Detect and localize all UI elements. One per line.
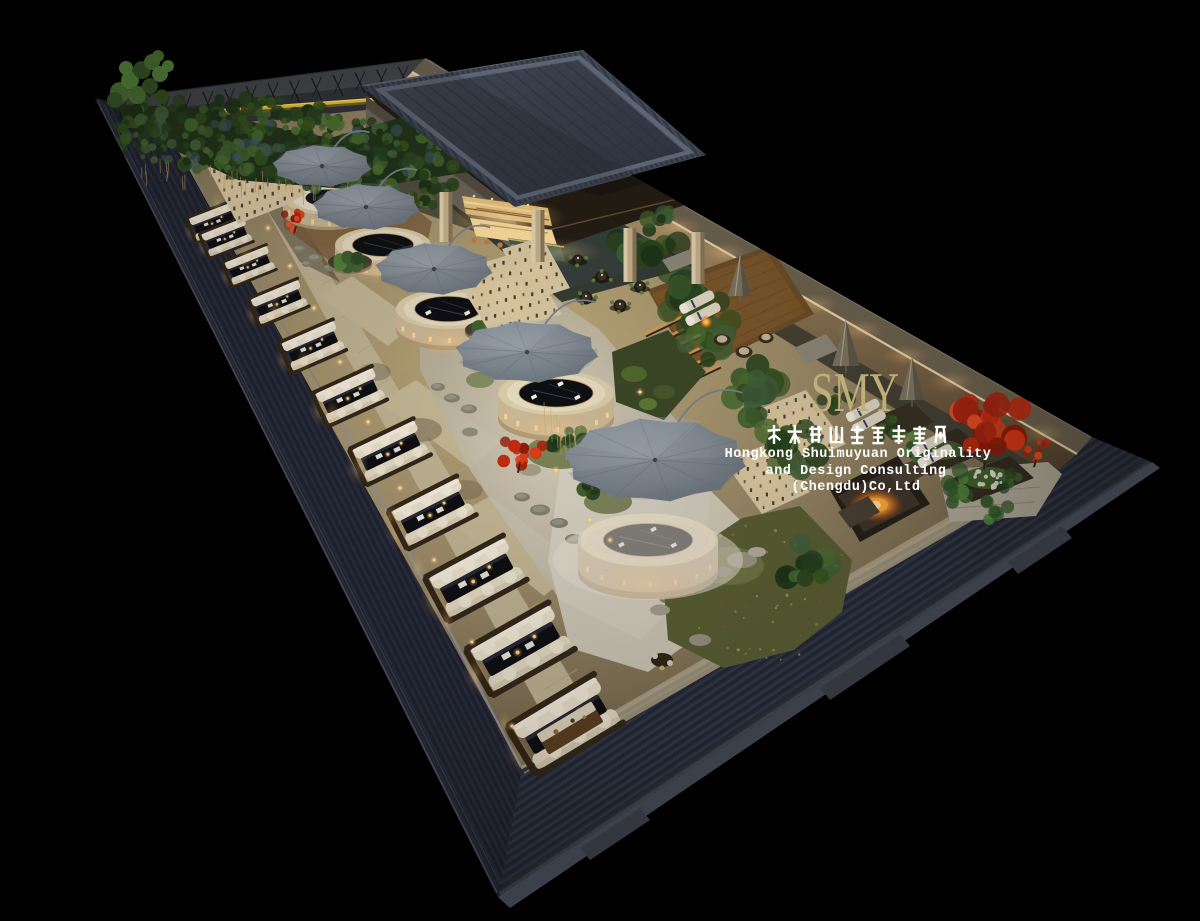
svg-text:and Design Consulting: and Design Consulting <box>766 464 947 479</box>
svg-text:SMY: SMY <box>811 362 899 424</box>
svg-text:Hongkong Shuimuyuan Originalit: Hongkong Shuimuyuan Originality <box>725 447 992 462</box>
svg-text:(Chengdu)Co,Ltd: (Chengdu)Co,Ltd <box>791 480 920 495</box>
